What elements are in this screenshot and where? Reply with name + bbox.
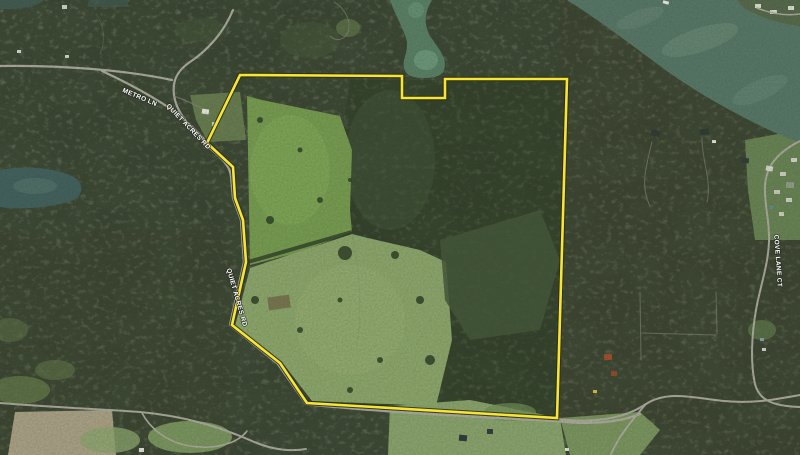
grain-overlay xyxy=(0,0,800,455)
satellite-map[interactable]: METRO LNQUIET ACRES RDQUIET ACRES RDCOVE… xyxy=(0,0,800,455)
map-viewport[interactable]: METRO LNQUIET ACRES RDQUIET ACRES RDCOVE… xyxy=(0,0,800,455)
